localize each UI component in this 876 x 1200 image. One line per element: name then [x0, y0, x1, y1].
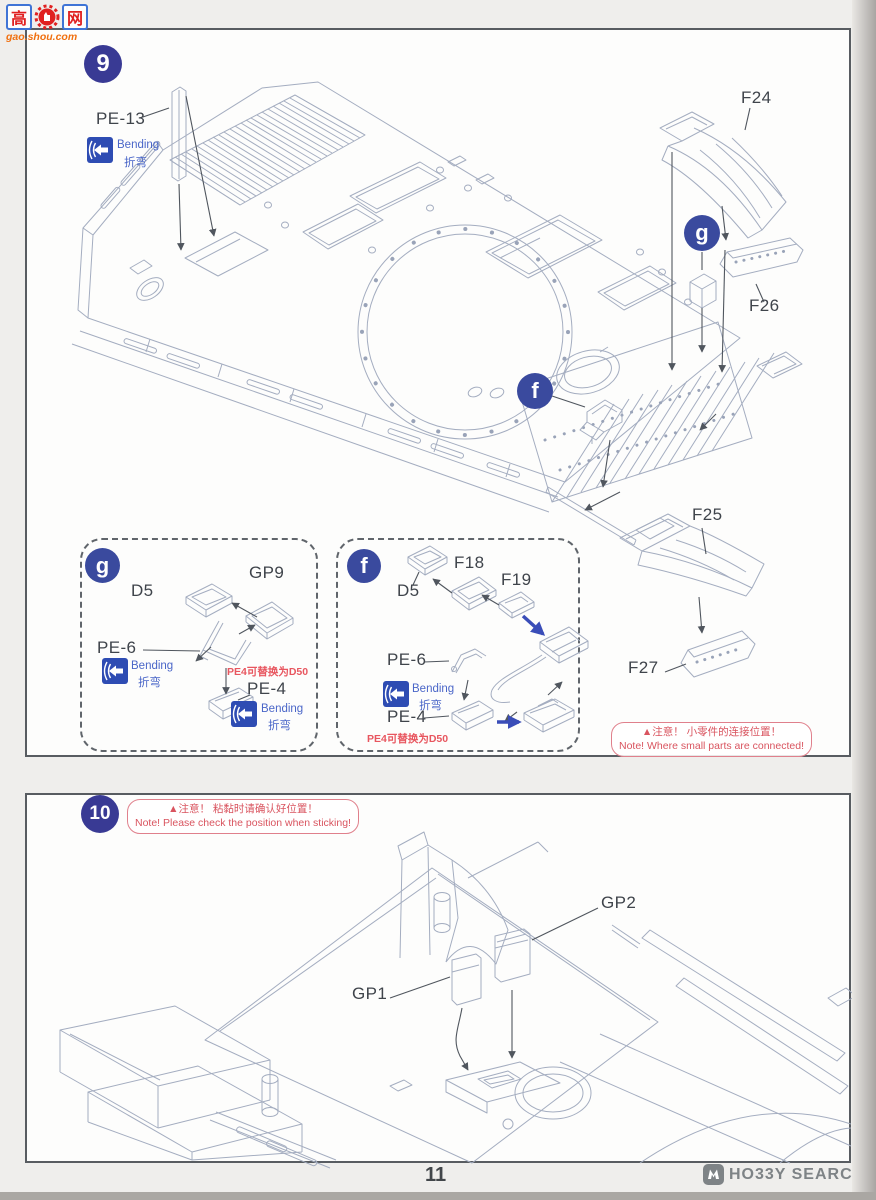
label-f24: F24 [741, 88, 772, 108]
inset-f-badge: f [347, 549, 381, 583]
replace-note-f: PE4可替换为D50 [367, 731, 448, 746]
page-edge-shadow-right [852, 0, 876, 1200]
step10-panel [25, 793, 851, 1163]
label-f18: F18 [454, 553, 485, 573]
page-number: 11 [425, 1164, 446, 1187]
label-pe4-g: PE-4 [247, 679, 286, 699]
label-gp2: GP2 [601, 893, 636, 913]
inset-g-badge: g [85, 548, 120, 583]
watermark-domain: gao.shou.com [6, 31, 88, 43]
bending-icon [231, 701, 257, 727]
note-cn: ▲注意！ 粘黏时请确认好位置！ [135, 803, 351, 817]
bending-label-en: Bending [117, 139, 159, 151]
watermark: 高 网 gao.shou.com [6, 4, 88, 43]
watermark-gear-icon [34, 4, 60, 30]
label-d5-f: D5 [397, 581, 420, 601]
watermark-char: 网 [62, 4, 88, 30]
hobby-search-icon [703, 1164, 724, 1185]
bending-label-en: Bending [412, 683, 454, 695]
label-pe6-g: PE-6 [97, 638, 136, 658]
note-small-parts: ▲注意！ 小零件的连接位置！ Note! Where small parts a… [611, 722, 812, 757]
label-d5-g: D5 [131, 581, 154, 601]
step9-badge: 9 [84, 45, 122, 83]
replace-note-g: PE4可替换为D50 [227, 664, 308, 679]
note-cn: ▲注意！ 小零件的连接位置！ [619, 726, 804, 740]
label-f26: F26 [749, 296, 780, 316]
note-en: Note! Where small parts are connected! [619, 740, 804, 754]
bending-label-cn: 折弯 [268, 717, 291, 733]
label-pe6-f: PE-6 [387, 650, 426, 670]
instruction-page: { "watermark": { "char1": "高", "char2": … [0, 0, 876, 1200]
label-pe13: PE-13 [96, 109, 145, 129]
bending-label-en: Bending [261, 703, 303, 715]
label-f19: F19 [501, 570, 532, 590]
hobby-search-logo: HO33Y SEARCH [703, 1164, 865, 1185]
bending-label-cn: 折弯 [419, 697, 442, 713]
location-badge-f: f [517, 373, 553, 409]
bending-icon [102, 658, 128, 684]
bending-label-en: Bending [131, 660, 173, 672]
hobby-search-text: HO33Y SEARCH [729, 1166, 865, 1184]
bending-label-cn: 折弯 [124, 154, 147, 170]
location-badge-g: g [684, 215, 720, 251]
label-gp9: GP9 [249, 563, 284, 583]
page-edge-shadow-bottom [0, 1192, 876, 1200]
label-gp1: GP1 [352, 984, 387, 1004]
note-sticking: ▲注意！ 粘黏时请确认好位置！ Note! Please check the p… [127, 799, 359, 834]
watermark-char: 高 [6, 4, 32, 30]
note-en: Note! Please check the position when sti… [135, 817, 351, 831]
bending-icon [383, 681, 409, 707]
label-f25: F25 [692, 505, 723, 525]
label-f27: F27 [628, 658, 659, 678]
step10-badge: 10 [81, 795, 119, 833]
bending-label-cn: 折弯 [138, 674, 161, 690]
bending-icon [87, 137, 113, 163]
